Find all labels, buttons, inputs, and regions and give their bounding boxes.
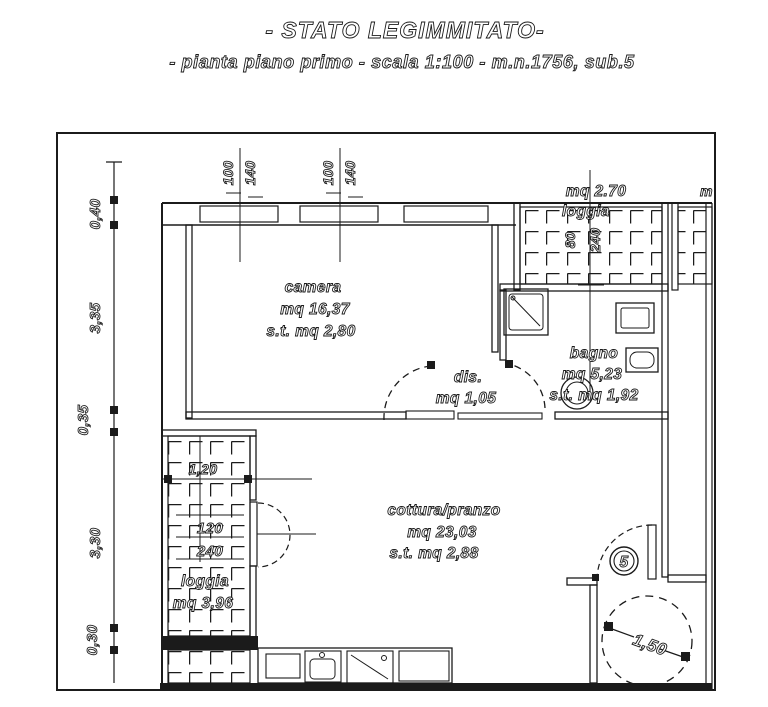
title-block: - STATO LEGIMMITATO- - pianta piano prim… <box>169 17 635 72</box>
dis-room: dis. mq 1,05 <box>384 360 545 420</box>
window-b-height: 140 <box>342 161 358 186</box>
loggia-top-area: mq 2.70 <box>566 183 627 200</box>
camera-st: s.t. mq 2,80 <box>266 323 355 340</box>
tile-hatch <box>678 207 712 284</box>
window-b-width: 100 <box>320 161 336 186</box>
loggia-left-win-w: 120 <box>197 520 223 537</box>
camera-label: camera <box>285 279 342 296</box>
kitchen-sink-icon <box>305 651 341 682</box>
cooktop-icon <box>347 651 393 683</box>
unit-number-badge: 5 <box>610 547 638 575</box>
loggia-left-label: loggia <box>181 573 229 590</box>
door-swing-arc <box>509 364 545 408</box>
door-swing-arc <box>258 503 290 567</box>
cottura-st: s.t. mq 2,88 <box>389 545 478 562</box>
loggia-left: 1,20 120 240 loggia mq 3,96 <box>162 430 316 683</box>
cottura-room: cottura/pranzo mq 23,03 s.t. mq 2,88 <box>387 502 500 562</box>
unit-number: 5 <box>619 554 628 571</box>
drawing-subtitle: - pianta piano primo - scala 1:100 - m.n… <box>169 52 635 72</box>
bagno-st: s.t. mq 1,92 <box>549 387 638 404</box>
loggia-left-w: 1,20 <box>189 461 218 477</box>
loggia-left-area: mq 3,96 <box>173 595 234 612</box>
cottura-area: mq 23,03 <box>407 524 477 541</box>
bottom-exterior-wall <box>160 683 712 691</box>
entrance-door-leaf <box>648 525 656 579</box>
bidet-icon <box>626 348 658 372</box>
turning-circle: 1,50 <box>602 596 692 686</box>
dim-0-30: 0,30 <box>84 624 101 655</box>
dis-label: dis. <box>454 369 482 386</box>
loggia-left-win-h: 240 <box>196 543 223 560</box>
kitchen-unit <box>266 654 300 678</box>
entrance-door-arc <box>597 525 652 580</box>
sliding-door <box>458 413 542 419</box>
dim-3-30: 3,30 <box>87 527 104 558</box>
window-frame <box>404 206 488 222</box>
loggia-right-partial-label: m <box>700 183 713 199</box>
window-a-width: 100 <box>220 161 236 186</box>
bagno-room: bagno mq 5,23 s.t. mq 1,92 <box>500 289 668 419</box>
tile-hatch <box>168 650 250 683</box>
floor-plan-sheet: - STATO LEGIMMITATO- - pianta piano prim… <box>0 0 768 707</box>
window-a-height: 140 <box>242 161 258 186</box>
entrance-area: 5 1,50 <box>567 525 706 686</box>
top-windows: 100 140 100 140 <box>200 148 488 262</box>
camera-area: mq 16,37 <box>280 301 351 318</box>
cottura-label: cottura/pranzo <box>387 502 500 519</box>
sliding-door <box>406 411 454 419</box>
kitchen-unit <box>399 651 449 681</box>
kitchen-counter <box>258 648 452 683</box>
dim-0-40: 0,40 <box>87 198 104 229</box>
dis-area: mq 1,05 <box>436 390 497 407</box>
drawing-title: - STATO LEGIMMITATO- <box>265 17 544 43</box>
left-dimension-chain: 0,40 3,35 0,35 3,30 0,30 <box>75 162 122 683</box>
bagno-area: mq 5,23 <box>562 366 623 383</box>
turning-circle-diameter: 1,50 <box>630 630 669 660</box>
bagno-label: bagno <box>570 345 619 362</box>
loggia-right-partial: m <box>672 183 713 290</box>
camera-left-wall <box>186 225 192 418</box>
window-frame <box>300 206 378 222</box>
camera-right-wall <box>492 225 498 352</box>
door-leaf <box>250 502 257 566</box>
shower-icon <box>504 289 548 335</box>
sink-icon <box>616 303 654 333</box>
dim-0-35: 0,35 <box>75 404 92 435</box>
window-frame <box>200 206 278 222</box>
loggia-top-w: 80 <box>562 232 578 248</box>
camera-bottom-wall <box>186 412 406 419</box>
loggia-top-label: loggia <box>562 203 610 220</box>
dim-3-35: 3,35 <box>87 302 104 333</box>
loggia-top-h: 240 <box>587 228 603 254</box>
